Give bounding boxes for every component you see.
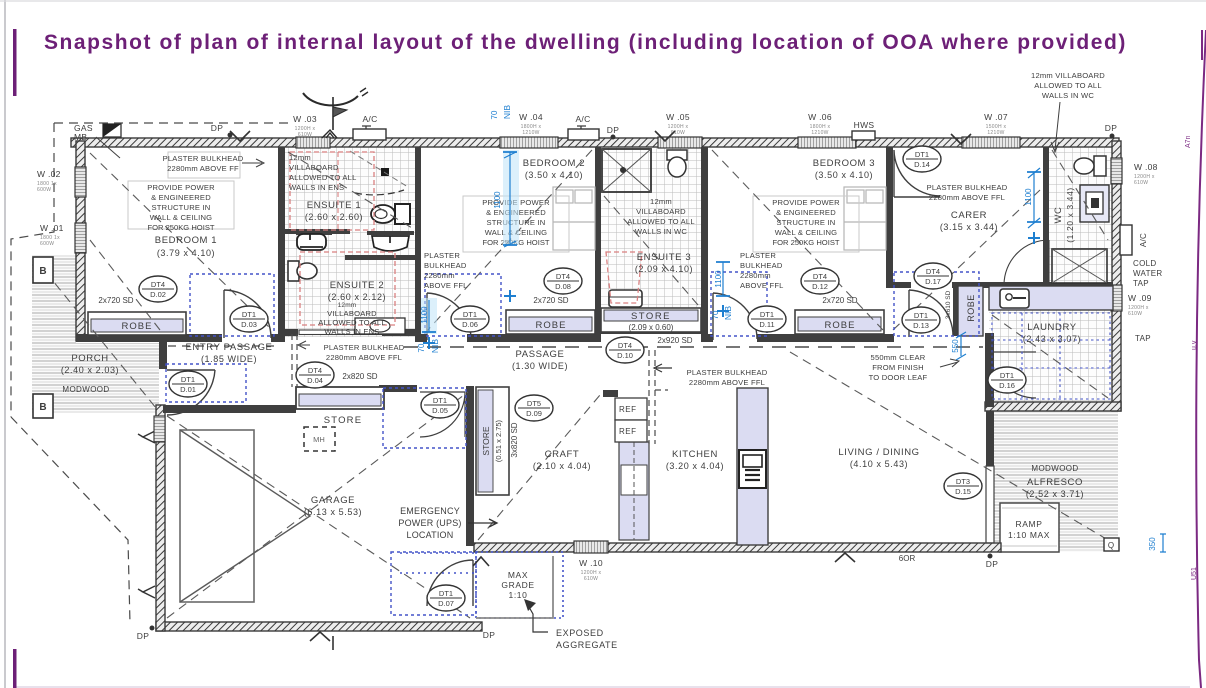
svg-text:A/C: A/C — [362, 114, 377, 124]
svg-text:(3.79 x 4.10): (3.79 x 4.10) — [157, 248, 215, 258]
svg-text:D.16: D.16 — [999, 381, 1015, 390]
svg-text:1100: 1100 — [714, 270, 723, 288]
svg-text:550mm CLEAR: 550mm CLEAR — [871, 353, 926, 362]
svg-text:& ENGINEERED: & ENGINEERED — [776, 208, 836, 217]
svg-text:DT4: DT4 — [926, 267, 940, 276]
svg-text:W .05: W .05 — [666, 112, 690, 122]
svg-text:(2.10 x 4.04): (2.10 x 4.04) — [533, 461, 591, 471]
svg-text:ENSUITE 2: ENSUITE 2 — [330, 280, 385, 291]
svg-text:D.04: D.04 — [307, 376, 323, 385]
svg-text:u.v: u.v — [1191, 340, 1198, 350]
svg-text:2x720 SD: 2x720 SD — [822, 296, 857, 305]
svg-text:(2.09 x 0.60): (2.09 x 0.60) — [629, 323, 674, 332]
svg-text:VILLABOARD: VILLABOARD — [289, 163, 339, 172]
svg-text:FROM FINISH: FROM FINISH — [872, 363, 924, 372]
svg-text:610W: 610W — [1128, 311, 1142, 317]
svg-text:TAP: TAP — [1135, 334, 1151, 343]
svg-text:EXPOSED: EXPOSED — [556, 628, 604, 638]
svg-text:WALL & CEILING: WALL & CEILING — [150, 213, 213, 222]
svg-text:ABOVE FFL: ABOVE FFL — [740, 281, 784, 290]
svg-text:2280mm ABOVE FF: 2280mm ABOVE FF — [167, 164, 239, 173]
svg-text:ABOVE FFL: ABOVE FFL — [424, 281, 468, 290]
svg-text:PLASTER BULKHEAD: PLASTER BULKHEAD — [324, 343, 405, 352]
svg-text:ALLOWED TO ALL: ALLOWED TO ALL — [289, 173, 357, 182]
svg-text:Snapshot of plan of internal l: Snapshot of plan of internal layout of t… — [44, 31, 1127, 54]
svg-text:TO DOOR LEAF: TO DOOR LEAF — [869, 373, 928, 382]
svg-text:PLASTER BULKHEAD: PLASTER BULKHEAD — [927, 183, 1008, 192]
svg-text:D.02: D.02 — [150, 290, 166, 299]
svg-text:(3.50 x 4.10): (3.50 x 4.10) — [815, 170, 873, 180]
svg-text:W .01: W .01 — [40, 223, 64, 233]
svg-text:NIB: NIB — [502, 105, 512, 120]
svg-text:1210W: 1210W — [987, 130, 1004, 136]
svg-text:DT1: DT1 — [439, 589, 453, 598]
svg-text:POWER (UPS): POWER (UPS) — [398, 518, 461, 528]
svg-text:BEDROOM 3: BEDROOM 3 — [813, 158, 875, 169]
svg-text:BULKHEAD: BULKHEAD — [740, 261, 783, 270]
svg-text:2280mm ABOVE FFL: 2280mm ABOVE FFL — [689, 378, 765, 387]
svg-text:MODWOOD: MODWOOD — [62, 385, 109, 394]
svg-text:TAP: TAP — [1133, 279, 1149, 288]
svg-text:D.12: D.12 — [812, 282, 828, 291]
svg-text:2280mm ABOVE FFL: 2280mm ABOVE FFL — [929, 193, 1005, 202]
svg-text:B: B — [39, 266, 46, 277]
svg-text:NIB: NIB — [723, 306, 733, 321]
svg-text:W .10: W .10 — [579, 558, 603, 568]
svg-text:(1.30 WIDE): (1.30 WIDE) — [512, 361, 568, 371]
svg-text:12mm VILLABOARD: 12mm VILLABOARD — [1031, 71, 1105, 80]
svg-text:DT1: DT1 — [242, 310, 256, 319]
svg-text:DT4: DT4 — [813, 272, 827, 281]
svg-text:W .07: W .07 — [984, 112, 1008, 122]
svg-text:LOCATION: LOCATION — [407, 530, 454, 540]
svg-text:WC: WC — [1053, 206, 1064, 223]
svg-text:MAX: MAX — [508, 570, 528, 580]
svg-text:70: 70 — [417, 343, 426, 352]
svg-text:W .02: W .02 — [37, 169, 61, 179]
svg-text:D.09: D.09 — [526, 409, 542, 418]
svg-text:GRADE: GRADE — [501, 580, 534, 590]
svg-text:ALLOWED TO ALL: ALLOWED TO ALL — [318, 318, 386, 327]
svg-text:DP: DP — [211, 123, 223, 133]
svg-text:12mm: 12mm — [650, 197, 672, 206]
svg-text:DT1: DT1 — [760, 310, 774, 319]
svg-text:COLD: COLD — [1133, 259, 1156, 268]
svg-text:EMERGENCY: EMERGENCY — [400, 506, 460, 516]
svg-text:(3.15 x 3.44): (3.15 x 3.44) — [940, 222, 998, 232]
svg-text:600W: 600W — [37, 187, 51, 193]
svg-text:D.13: D.13 — [913, 321, 929, 330]
svg-text:D.08: D.08 — [555, 282, 571, 291]
svg-text:610W: 610W — [298, 132, 312, 138]
svg-text:BEDROOM 2: BEDROOM 2 — [523, 158, 585, 169]
svg-text:3x820 SD: 3x820 SD — [510, 422, 519, 457]
svg-text:MH: MH — [313, 435, 325, 444]
svg-text:A/C: A/C — [1139, 233, 1148, 247]
svg-text:DT3: DT3 — [956, 477, 970, 486]
svg-text:(0.51 x 2.75): (0.51 x 2.75) — [494, 419, 503, 462]
svg-text:ALFRESCO: ALFRESCO — [1027, 477, 1083, 488]
svg-text:DT5: DT5 — [527, 399, 541, 408]
svg-text:D.07: D.07 — [438, 599, 454, 608]
svg-text:RAMP: RAMP — [1016, 519, 1043, 529]
svg-text:2280mm ABOVE FFL: 2280mm ABOVE FFL — [326, 353, 402, 362]
svg-text:PLASTER BULKHEAD: PLASTER BULKHEAD — [163, 154, 244, 163]
svg-text:WALL & CEILING: WALL & CEILING — [775, 228, 838, 237]
svg-text:DT4: DT4 — [556, 272, 570, 281]
svg-text:STRUCTURE IN: STRUCTURE IN — [152, 203, 211, 212]
svg-text:U51: U51 — [1191, 567, 1198, 580]
svg-text:1210W: 1210W — [522, 130, 539, 136]
svg-text:DT1: DT1 — [914, 311, 928, 320]
svg-text:MODWOOD: MODWOOD — [1031, 464, 1078, 473]
svg-text:2280mm: 2280mm — [424, 271, 455, 280]
svg-text:VILLABOARD: VILLABOARD — [327, 309, 377, 318]
svg-text:70: 70 — [490, 110, 499, 119]
svg-text:STRUCTURE IN: STRUCTURE IN — [777, 218, 836, 227]
svg-text:W .03: W .03 — [293, 114, 317, 124]
svg-text:(2.09 x 4.10): (2.09 x 4.10) — [635, 264, 693, 274]
svg-text:STORE: STORE — [324, 415, 363, 426]
svg-text:LIVING / DINING: LIVING / DINING — [838, 447, 919, 458]
svg-text:DT4: DT4 — [308, 366, 322, 375]
svg-text:DP: DP — [1105, 123, 1117, 133]
svg-text:DP: DP — [483, 630, 495, 640]
svg-text:ENSUITE 3: ENSUITE 3 — [637, 252, 692, 263]
svg-text:DP: DP — [137, 631, 149, 641]
svg-text:DT1: DT1 — [915, 150, 929, 159]
svg-text:(1.20 x 3.44): (1.20 x 3.44) — [1065, 187, 1075, 243]
svg-text:12mm: 12mm — [289, 153, 311, 162]
svg-text:PLASTER: PLASTER — [740, 251, 776, 260]
svg-text:STORE: STORE — [631, 311, 671, 322]
svg-text:12mm: 12mm — [338, 302, 357, 309]
svg-text:D.06: D.06 — [462, 320, 478, 329]
svg-text:ALLOWED TO ALL: ALLOWED TO ALL — [627, 217, 695, 226]
svg-text:PROVIDE POWER: PROVIDE POWER — [772, 198, 840, 207]
svg-text:WALLS IN WC: WALLS IN WC — [635, 227, 687, 236]
svg-text:3x610 SD: 3x610 SD — [945, 290, 952, 319]
svg-text:PLASTER BULKHEAD: PLASTER BULKHEAD — [687, 368, 768, 377]
svg-text:DT1: DT1 — [463, 310, 477, 319]
svg-text:B: B — [39, 402, 46, 413]
svg-text:MB: MB — [74, 132, 87, 142]
svg-text:PORCH: PORCH — [71, 353, 108, 364]
svg-text:Q: Q — [1108, 541, 1114, 550]
svg-text:A/C: A/C — [575, 114, 590, 124]
svg-text:VILLABOARD: VILLABOARD — [636, 207, 686, 216]
svg-text:2x720 SD: 2x720 SD — [533, 296, 568, 305]
svg-text:GARAGE: GARAGE — [311, 495, 355, 506]
svg-text:D.03: D.03 — [241, 320, 257, 329]
svg-text:(2.43 x 3.07): (2.43 x 3.07) — [1023, 334, 1081, 344]
svg-text:LAUNDRY: LAUNDRY — [1027, 322, 1076, 333]
svg-text:W .06: W .06 — [808, 112, 832, 122]
svg-text:1:10: 1:10 — [509, 590, 528, 600]
svg-text:DT4: DT4 — [618, 341, 632, 350]
svg-text:PROVIDE POWER: PROVIDE POWER — [147, 183, 215, 192]
svg-text:WATER: WATER — [1133, 269, 1163, 278]
svg-text:ROBE: ROBE — [122, 321, 153, 332]
svg-text:W .08: W .08 — [1134, 162, 1158, 172]
svg-text:DT4: DT4 — [151, 280, 165, 289]
svg-text:350: 350 — [1148, 537, 1157, 551]
svg-text:D.01: D.01 — [180, 385, 196, 394]
svg-text:D.14: D.14 — [914, 160, 930, 169]
svg-text:PLASTER: PLASTER — [424, 251, 460, 260]
svg-text:1100: 1100 — [1024, 188, 1033, 206]
svg-text:610W: 610W — [1134, 180, 1148, 186]
svg-text:(3.50 x 4.10): (3.50 x 4.10) — [525, 170, 583, 180]
svg-text:ROBE: ROBE — [536, 320, 567, 331]
svg-text:(2.40 x 2.03): (2.40 x 2.03) — [61, 365, 119, 375]
svg-text:1210W: 1210W — [811, 130, 828, 136]
svg-text:FOR 250KG HOIST: FOR 250KG HOIST — [147, 223, 214, 232]
svg-text:KITCHEN: KITCHEN — [672, 449, 718, 460]
svg-text:CRAFT: CRAFT — [545, 449, 580, 460]
svg-text:ROBE: ROBE — [966, 294, 976, 322]
svg-text:(2.60 x 2.60): (2.60 x 2.60) — [305, 212, 363, 222]
svg-text:PASSAGE: PASSAGE — [516, 349, 565, 360]
svg-text:ENTRY PASSAGE: ENTRY PASSAGE — [186, 342, 273, 353]
svg-text:ROBE: ROBE — [825, 320, 856, 331]
svg-text:(2.52 x 3.71): (2.52 x 3.71) — [1026, 489, 1084, 499]
svg-text:BEDROOM 1: BEDROOM 1 — [155, 235, 217, 246]
svg-text:DT1: DT1 — [1000, 371, 1014, 380]
svg-text:D.17: D.17 — [925, 277, 941, 286]
svg-text:2x720 SD: 2x720 SD — [98, 296, 133, 305]
svg-text:(2.60 x 2.12): (2.60 x 2.12) — [328, 292, 386, 302]
svg-text:W .04: W .04 — [519, 112, 543, 122]
svg-text:DT1: DT1 — [181, 375, 195, 384]
svg-text:2x820 SD: 2x820 SD — [342, 372, 377, 381]
svg-text:REF: REF — [619, 405, 637, 414]
svg-text:1100: 1100 — [420, 306, 429, 324]
svg-text:2280mm: 2280mm — [740, 271, 771, 280]
svg-text:HWS: HWS — [854, 120, 875, 130]
svg-text:A7n: A7n — [1185, 135, 1192, 148]
svg-text:& ENGINEERED: & ENGINEERED — [151, 193, 211, 202]
svg-text:6OR: 6OR — [899, 554, 916, 563]
svg-text:2x920 SD: 2x920 SD — [657, 336, 692, 345]
svg-text:1100: 1100 — [493, 191, 502, 209]
svg-text:DP: DP — [607, 125, 619, 135]
svg-text:WALLS IN ENS: WALLS IN ENS — [324, 327, 379, 336]
svg-text:ALLOWED TO ALL: ALLOWED TO ALL — [1034, 81, 1102, 90]
svg-text:ENSUITE 1: ENSUITE 1 — [307, 200, 362, 211]
svg-text:WALLS IN WC: WALLS IN WC — [1042, 91, 1094, 100]
svg-text:DT1: DT1 — [433, 396, 447, 405]
svg-text:AGGREGATE: AGGREGATE — [556, 640, 618, 650]
svg-text:CARER: CARER — [951, 210, 987, 221]
svg-text:W .09: W .09 — [1128, 293, 1152, 303]
svg-text:(6.13 x 5.53): (6.13 x 5.53) — [304, 507, 362, 517]
svg-text:D.11: D.11 — [759, 320, 774, 329]
svg-text:610W: 610W — [584, 576, 598, 582]
svg-text:REF: REF — [619, 427, 637, 436]
svg-text:550: 550 — [951, 339, 960, 353]
svg-text:WALLS IN ENS: WALLS IN ENS — [289, 183, 344, 192]
svg-text:BULKHEAD: BULKHEAD — [424, 261, 467, 270]
svg-text:(4.10 x 5.43): (4.10 x 5.43) — [850, 459, 908, 469]
svg-text:D.05: D.05 — [432, 406, 448, 415]
svg-text:D.10: D.10 — [617, 351, 633, 360]
svg-text:(3.20 x 4.04): (3.20 x 4.04) — [666, 461, 724, 471]
svg-text:1:10 MAX: 1:10 MAX — [1008, 530, 1050, 540]
svg-text:FOR 250KG HOIST: FOR 250KG HOIST — [772, 238, 839, 247]
svg-text:D.15: D.15 — [955, 487, 971, 496]
svg-text:DP: DP — [986, 559, 998, 569]
svg-text:STORE: STORE — [481, 426, 491, 455]
svg-text:600W: 600W — [40, 241, 54, 247]
svg-text:(1.85 WIDE): (1.85 WIDE) — [201, 354, 257, 364]
svg-text:NIB: NIB — [430, 339, 440, 354]
